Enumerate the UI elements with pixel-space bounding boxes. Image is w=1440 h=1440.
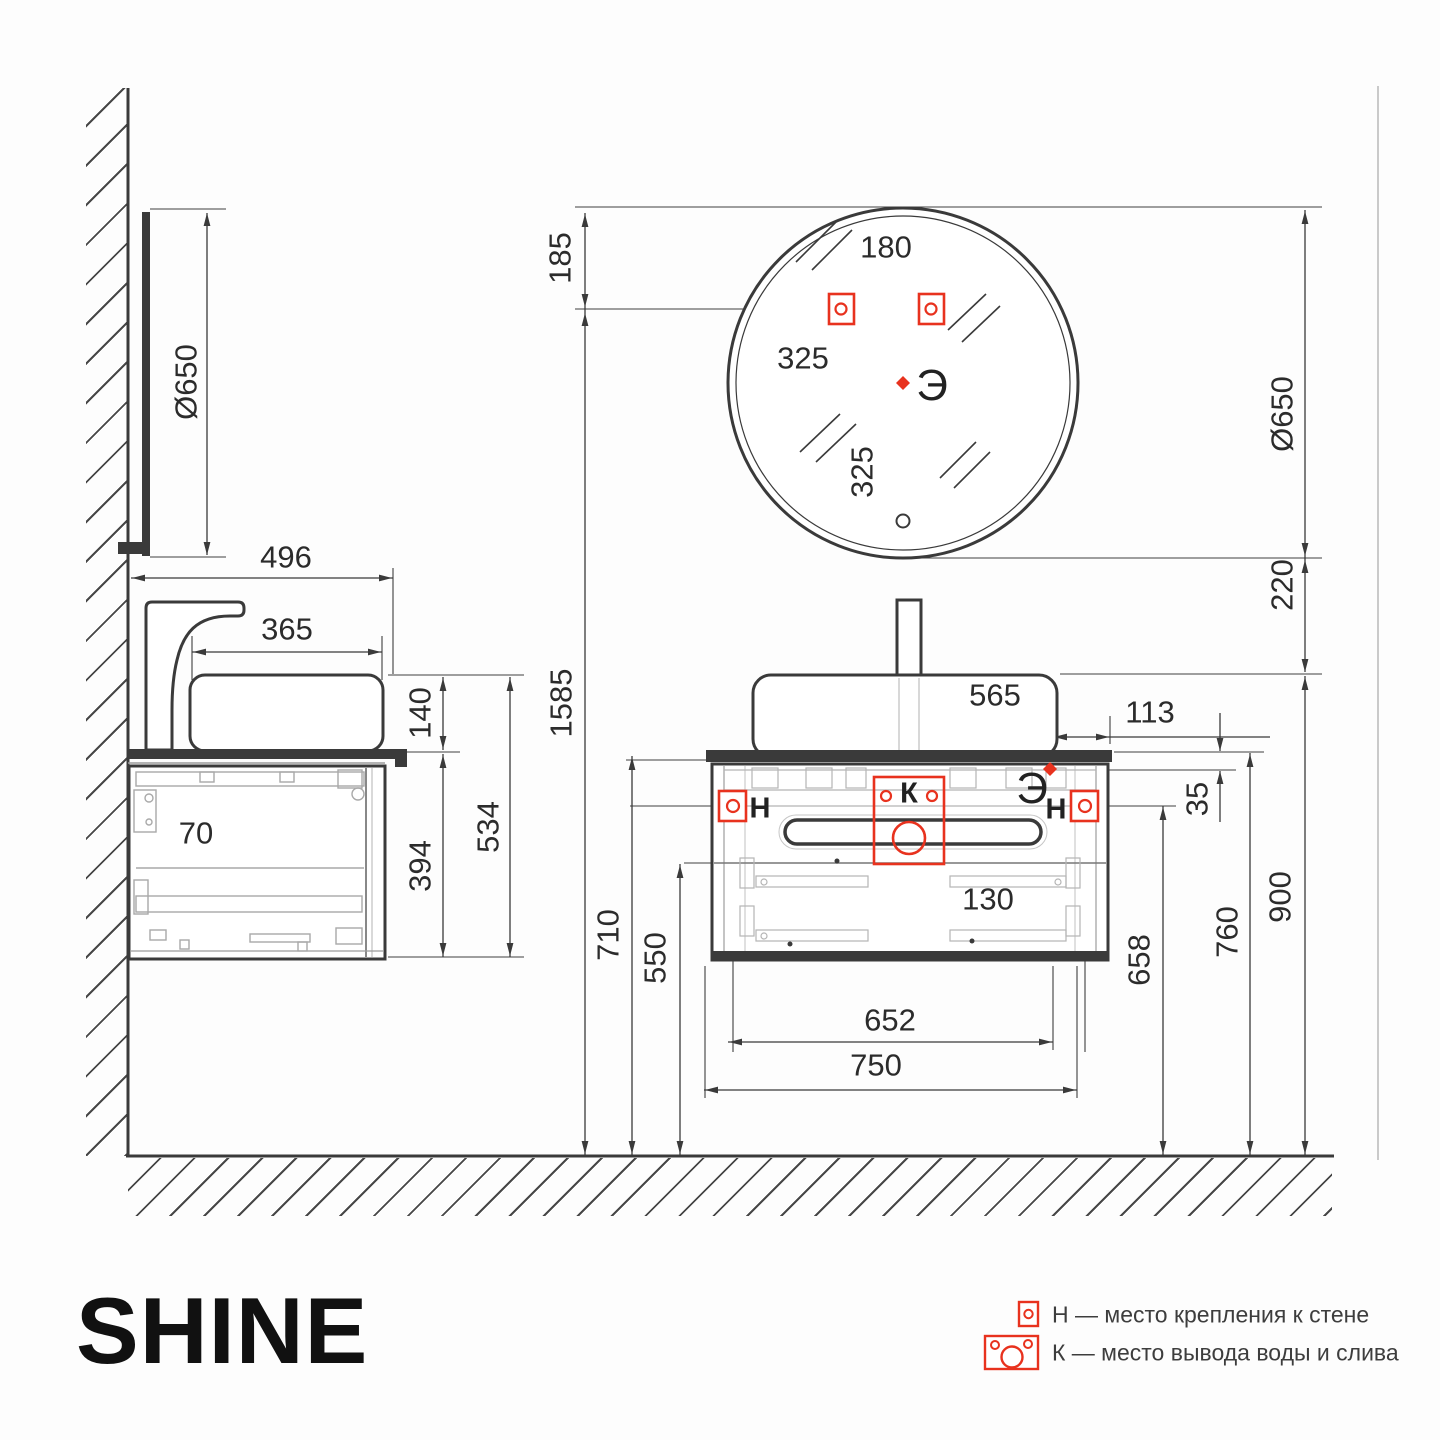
mount-marker-left: Н (750, 795, 771, 824)
side-countertop (128, 749, 407, 759)
front-countertop (706, 750, 1112, 762)
side-cabinet (129, 766, 385, 959)
dim-mirror-diameter-side: Ø650 (171, 344, 202, 420)
dim-cabinet-width: 750 (850, 1050, 902, 1081)
side-view (118, 212, 407, 959)
dim-sink-rim-height: 900 (1265, 871, 1296, 923)
dim-sink-width: 565 (969, 680, 1021, 711)
drain-marker: К (900, 780, 918, 809)
structure-lines (126, 86, 1378, 1160)
mount-marker-right: Н (1046, 796, 1067, 825)
dim-worktop-height: 760 (1212, 906, 1243, 958)
side-mirror (142, 212, 150, 556)
dim-wall-gap: 70 (179, 818, 213, 849)
legend-mount-text: Н — место крепления к стене (1052, 1304, 1369, 1327)
dim-side-total-height: 534 (473, 801, 504, 853)
dim-sink-depth: 365 (261, 614, 313, 645)
mirror-sensor (897, 515, 910, 528)
dim-mount-height: 658 (1124, 934, 1155, 986)
dim-drain-box-width: 130 (962, 884, 1014, 915)
dim-sink-height: 140 (405, 687, 436, 739)
dim-mirror-to-sink-gap: 220 (1267, 559, 1298, 611)
product-logo: SHINE (76, 1284, 368, 1378)
electric-marker-mirror: Э (916, 364, 948, 408)
front-view (706, 208, 1112, 960)
dim-outlet-below-top: 35 (1182, 782, 1213, 816)
legend-mount-icon (1019, 1302, 1038, 1326)
dim-mirror-center-x: 325 (777, 343, 829, 374)
legend-icons (985, 1302, 1038, 1369)
dim-drawer-split-height: 550 (640, 932, 671, 984)
electric-marker-cabinet: Э (1016, 767, 1048, 811)
dim-mirror-diameter-front: Ø650 (1267, 376, 1298, 452)
dim-mirror-hole-spacing: 180 (860, 232, 912, 263)
dim-mount-spacing: 652 (864, 1005, 916, 1036)
dim-cabinet-top-height: 710 (593, 909, 624, 961)
side-sink (190, 675, 383, 751)
dim-cabinet-height: 394 (405, 840, 436, 892)
dim-mirror-height-total: 1585 (546, 669, 577, 738)
dim-mirror-center-y: 325 (847, 446, 878, 498)
dim-sink-side-offset: 113 (1125, 697, 1174, 728)
dim-vanity-depth: 496 (260, 542, 312, 573)
side-mirror-base (118, 542, 142, 554)
legend-drain-text: К — место вывода воды и слива (1052, 1342, 1399, 1365)
drawing-canvas (0, 0, 1440, 1440)
dim-mirror-top-gap: 185 (545, 232, 576, 284)
front-faucet (897, 600, 921, 678)
technical-drawing-page: Ø650 496 365 140 534 394 70 185 1585 180… (0, 0, 1440, 1440)
